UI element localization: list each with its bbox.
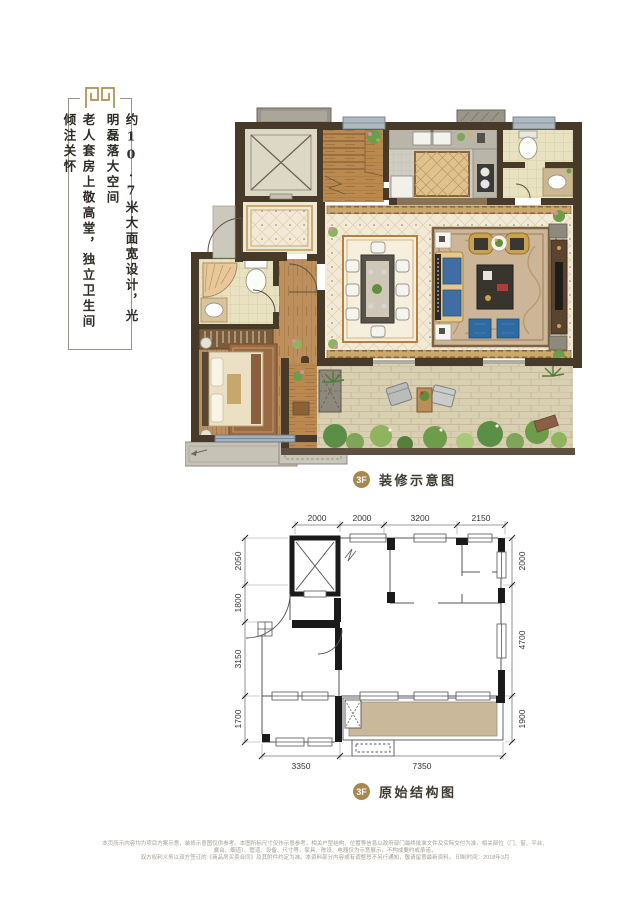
decorated-floorplan [185,106,585,471]
structural-plan-label: 3F 原始结构图 [353,782,457,801]
ottoman [497,319,519,338]
plant [367,130,381,144]
svg-text:2000: 2000 [517,551,527,570]
nightstand [201,338,212,349]
floor-badge: 3F [353,471,370,488]
toilet [246,269,266,293]
gold-knot-ornament-icon [80,85,120,111]
washbasin [205,303,223,317]
kitchen-rug [415,152,469,196]
kitchen-pass-threshold [397,198,487,205]
foyer-floor [242,202,317,254]
floor-badge: 3F [353,783,370,800]
slogan-line-2: 老人套房上敬高堂，独立卫生间倾注关怀 [60,113,98,339]
terrace-fill [349,702,497,736]
dining-set [343,236,417,342]
entry-landing [213,206,235,258]
svg-text:1900: 1900 [517,709,527,728]
slogan-box: 约10.7米大面宽设计，光明磊落大空间 老人套房上敬高堂，独立卫生间倾注关怀 [68,98,132,350]
svg-text:7350: 7350 [413,761,432,771]
fridge [391,176,413,198]
svg-text:3200: 3200 [411,513,430,523]
slogan-text: 约10.7米大面宽设计，光明磊落大空间 老人套房上敬高堂，独立卫生间倾注关怀 [55,113,146,339]
kitchen [389,129,497,198]
kitchen-sink [413,132,431,145]
slogan-line-1: 约10.7米大面宽设计，光明磊落大空间 [103,113,141,339]
decorated-plan-title: 装修示意图 [379,470,457,489]
stoop [352,740,394,756]
svg-text:2000: 2000 [308,513,327,523]
disclaimer-line-2: 双方权利义务以双方签订的《商品房买卖合同》及其附件约定为准。本资料部分内容或有调… [100,855,550,862]
disclaimer: 本页所示内容均为项目方案示意，装修示意图仅供参考。本图所标尺寸仅作示意参考，相关… [100,841,550,862]
structural-floorplan: 2000 2000 3200 2150 2050 1800 3150 1700 … [200,508,585,778]
svg-text:2000: 2000 [353,513,372,523]
svg-text:2150: 2150 [472,513,491,523]
svg-text:4700: 4700 [517,630,527,649]
terrace [289,363,573,452]
stair-hall-floor [320,129,384,202]
decorated-plan-label: 3F 装修示意图 [353,470,457,489]
svg-text:3150: 3150 [233,649,243,668]
svg-text:1700: 1700 [233,709,243,728]
svg-text:3350: 3350 [292,761,311,771]
svg-text:2050: 2050 [233,551,243,570]
toilet [519,137,537,159]
suite-bathroom [199,259,279,324]
structural-plan-title: 原始结构图 [379,782,457,801]
disclaimer-line-1: 本页所示内容均为项目方案示意，装修示意图仅供参考。本图所标尺寸仅作示意参考，相关… [100,841,550,855]
sofa-set [433,228,549,346]
washbasin [548,175,566,189]
ottoman [469,319,491,338]
svg-text:1800: 1800 [233,593,243,612]
brochure-page: 约10.7米大面宽设计，光明磊落大空间 老人套房上敬高堂，独立卫生间倾注关怀 [0,0,640,920]
